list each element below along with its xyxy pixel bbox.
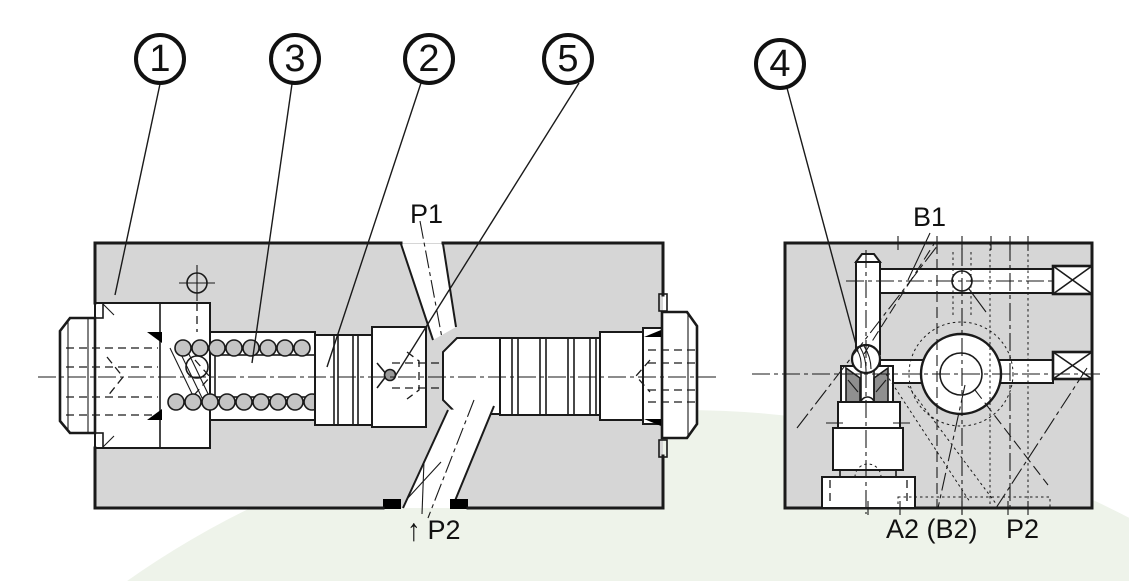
port-label-p2-text: P2 <box>428 516 461 546</box>
port-label-b1: B1 <box>913 203 946 233</box>
callout-balloon-4: 4 <box>754 38 806 90</box>
sectional-drawing-linework <box>0 0 1129 581</box>
callout-balloon-2: 2 <box>403 33 455 85</box>
plug-bore-left <box>95 303 210 448</box>
port-label-p2-bottom: ↑ P2 <box>407 516 461 546</box>
plug-symbol-top <box>1053 266 1092 294</box>
callout-number: 5 <box>557 40 578 78</box>
left-view <box>38 221 718 518</box>
flow-arrow-up-icon: ↑ <box>407 515 421 546</box>
callout-balloon-5: 5 <box>542 33 594 85</box>
callout-number: 4 <box>769 45 790 83</box>
port-label-p2-right: P2 <box>1006 515 1039 545</box>
plug-symbol-middle <box>1053 352 1092 379</box>
valve-seat-insert <box>443 338 500 414</box>
port-label-a2-b2: A2 (B2) <box>886 515 978 545</box>
spool-land <box>315 335 372 425</box>
port-seal-right <box>450 499 468 509</box>
right-view <box>752 233 1104 515</box>
port-seal-left <box>383 499 401 509</box>
callout-number: 1 <box>149 40 170 78</box>
valve-sectional-drawing-page: 1 3 2 5 4 P1 ↑ P2 B1 A2 (B2) P2 <box>0 0 1129 581</box>
callout-number: 2 <box>418 40 439 78</box>
callout-balloon-1: 1 <box>134 33 186 85</box>
check-ball-small <box>385 370 396 381</box>
port-label-p1: P1 <box>410 200 443 230</box>
callout-number: 3 <box>284 40 305 78</box>
callout-balloon-3: 3 <box>269 33 321 85</box>
